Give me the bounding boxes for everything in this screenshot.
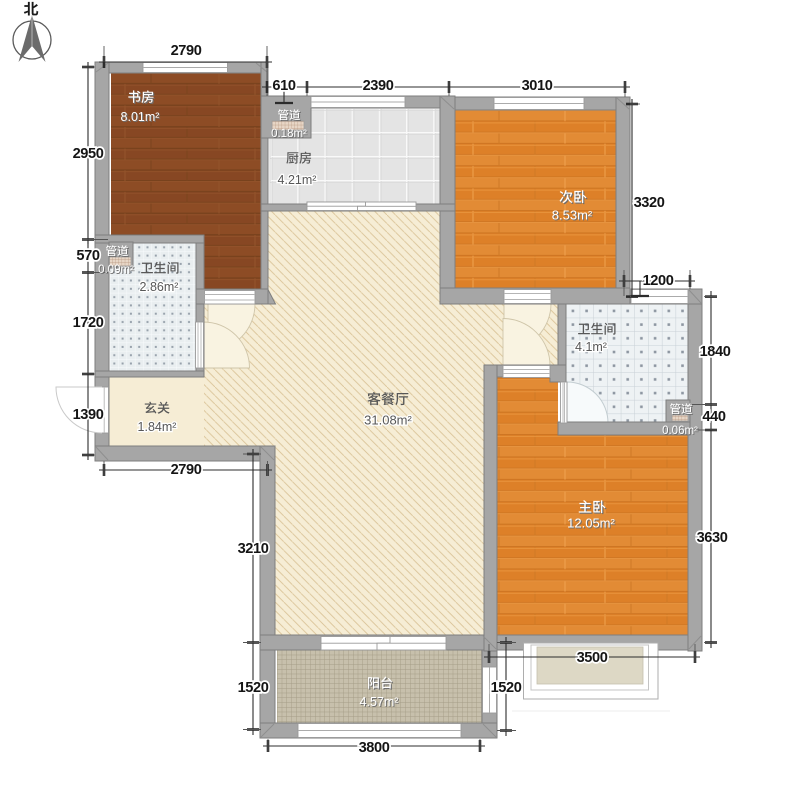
svg-text:2950: 2950	[73, 146, 104, 162]
svg-text:12.05m²: 12.05m²	[567, 516, 615, 531]
svg-text:1720: 1720	[73, 315, 104, 331]
svg-text:0.06m²: 0.06m²	[662, 425, 698, 437]
svg-text:1390: 1390	[73, 407, 104, 423]
svg-text:1840: 1840	[700, 344, 731, 360]
svg-text:4.57m²: 4.57m²	[360, 695, 399, 709]
svg-text:3630: 3630	[697, 530, 728, 546]
svg-text:2790: 2790	[171, 43, 202, 59]
svg-text:2790: 2790	[171, 462, 202, 478]
svg-text:3320: 3320	[634, 195, 665, 211]
svg-text:31.08m²: 31.08m²	[364, 413, 412, 428]
svg-text:4.1m²: 4.1m²	[575, 340, 607, 354]
svg-text:1.84m²: 1.84m²	[138, 420, 177, 434]
svg-text:3800: 3800	[359, 740, 390, 756]
svg-text:1200: 1200	[643, 273, 674, 289]
svg-text:2.86m²: 2.86m²	[140, 280, 179, 294]
svg-text:0.09m²: 0.09m²	[98, 264, 134, 276]
svg-text:570: 570	[76, 248, 99, 264]
svg-text:1520: 1520	[491, 680, 522, 696]
svg-text:3500: 3500	[577, 650, 608, 666]
svg-text:1520: 1520	[238, 680, 269, 696]
svg-text:4.21m²: 4.21m²	[278, 173, 317, 187]
svg-text:8.01m²: 8.01m²	[121, 110, 160, 124]
svg-text:440: 440	[702, 409, 725, 425]
svg-text:610: 610	[272, 78, 295, 94]
svg-text:0.18m²: 0.18m²	[271, 128, 307, 140]
svg-text:2390: 2390	[363, 78, 394, 94]
svg-text:3010: 3010	[522, 78, 553, 94]
svg-text:3210: 3210	[238, 541, 269, 557]
svg-text:8.53m²: 8.53m²	[552, 208, 593, 223]
